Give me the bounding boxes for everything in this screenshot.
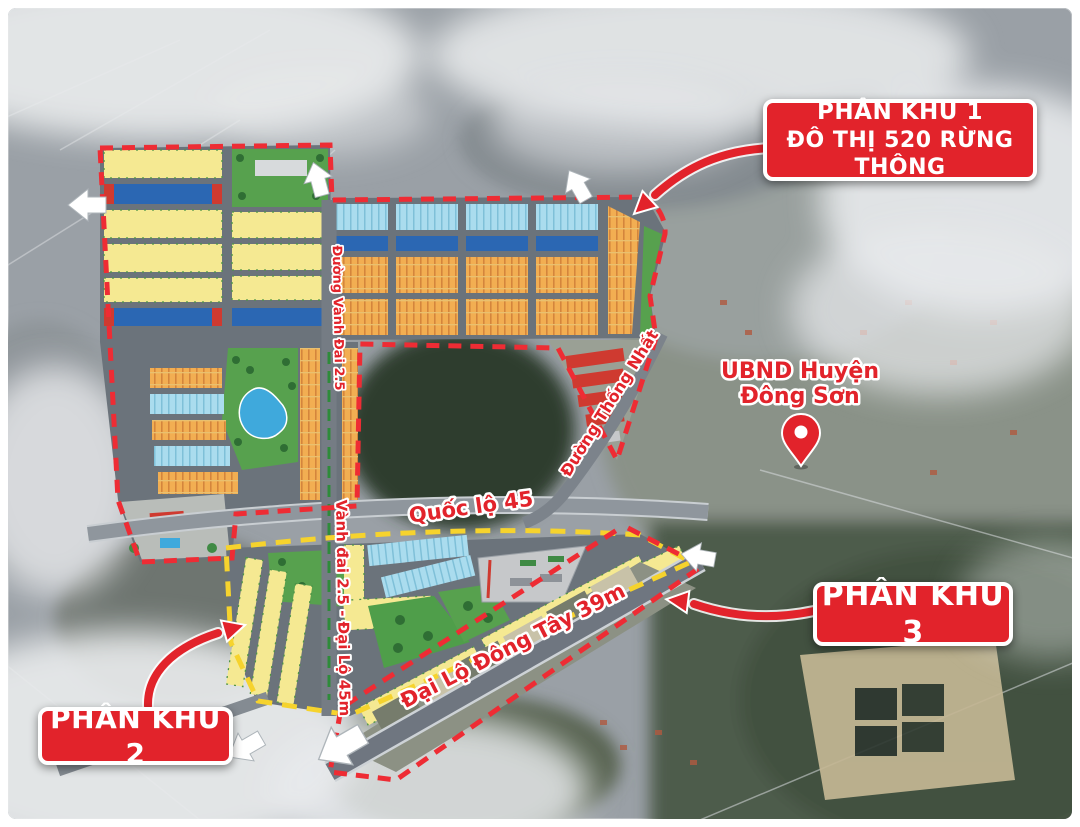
phan-khu-1-title: PHÂN KHU 1 <box>817 98 983 127</box>
vanh-dai-label: Vành đai 2.5 - Đại Lộ 45m <box>332 499 354 716</box>
pk1-right-strip <box>336 204 662 335</box>
phan-khu-3-title: PHÂN KHU 3 <box>817 577 1009 652</box>
screenshot-frame: Quốc lộ 45 Đại Lộ Đông Tây 39m Vành đai … <box>0 0 1080 827</box>
ubnd-label-line1: UBND Huyện <box>721 359 879 384</box>
pk1-left-grid <box>104 149 328 326</box>
phan-khu-1-label: PHÂN KHU 1 ĐÔ THỊ 520 RỪNG THÔNG <box>763 99 1037 181</box>
construction-site <box>800 638 1015 800</box>
phan-khu-1-subtitle: ĐÔ THỊ 520 RỪNG THÔNG <box>767 127 1033 182</box>
ubnd-label-line2: Đông Sơn <box>740 384 859 409</box>
phan-khu-2-title: PHÂN KHU 2 <box>42 701 229 771</box>
phan-khu-3-label: PHÂN KHU 3 <box>813 582 1013 646</box>
duong-vanh-dai-label: Đường Vành Đai 2.5 <box>329 245 347 390</box>
phan-khu-2-label: PHÂN KHU 2 <box>38 707 233 765</box>
